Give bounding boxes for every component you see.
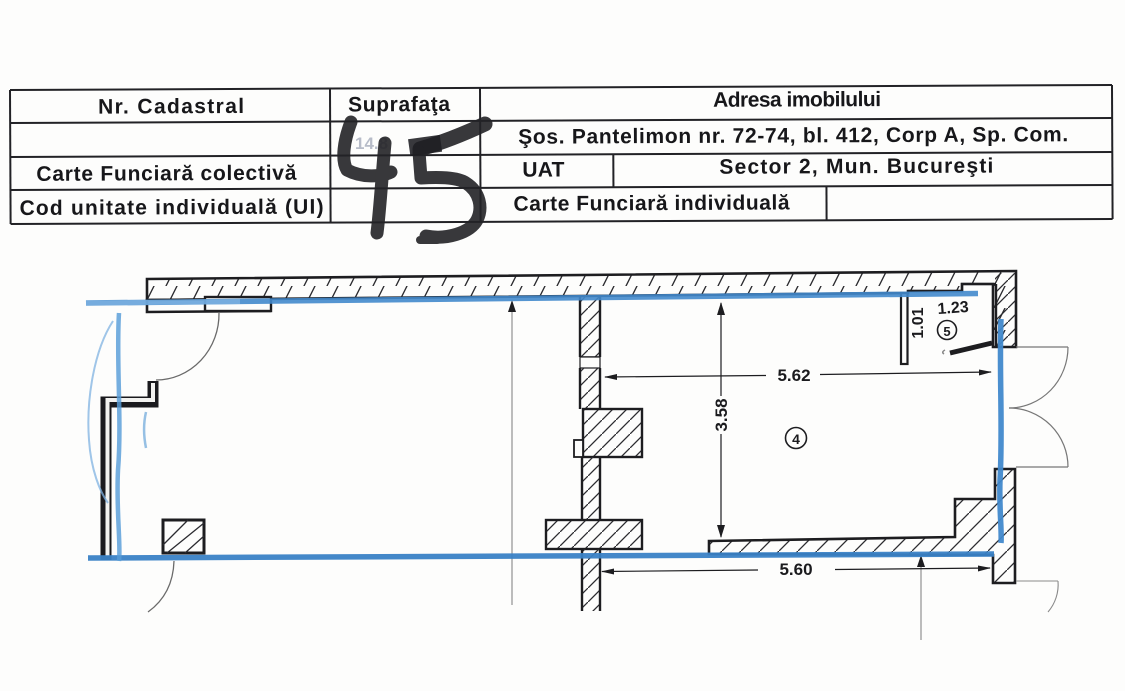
svg-text:5: 5	[943, 324, 950, 339]
svg-text:Sector 2, Mun. Bucureşti: Sector 2, Mun. Bucureşti	[719, 155, 993, 179]
svg-text:3.58: 3.58	[712, 398, 731, 431]
svg-text:Suprafaţa: Suprafaţa	[348, 93, 450, 116]
svg-text:1.23: 1.23	[937, 299, 969, 318]
svg-text:Adresa imobilului: Adresa imobilului	[713, 88, 881, 112]
svg-text:1.01: 1.01	[910, 307, 927, 338]
svg-text:Cod unitate individuală (UI): Cod unitate individuală (UI)	[19, 196, 323, 220]
svg-text:5.60: 5.60	[779, 560, 812, 579]
svg-text:Carte Funciară individuală: Carte Funciară individuală	[513, 191, 789, 215]
svg-text:Şos. Pantelimon nr. 72-74, bl.: Şos. Pantelimon nr. 72-74, bl. 412, Corp…	[518, 123, 1068, 148]
svg-text:4: 4	[792, 431, 800, 447]
svg-text:5.62: 5.62	[777, 366, 810, 385]
svg-text:UAT: UAT	[522, 158, 564, 181]
svg-text:Nr. Cadastral: Nr. Cadastral	[98, 95, 244, 119]
svg-text:Carte Funciară colectivă: Carte Funciară colectivă	[36, 162, 296, 186]
